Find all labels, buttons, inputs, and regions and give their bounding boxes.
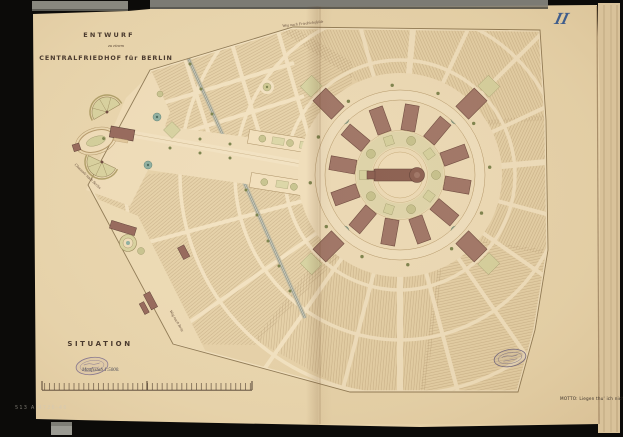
title-line1: ENTWURF <box>64 31 154 39</box>
clamp <box>51 422 72 435</box>
underlying-sheet-edge <box>598 3 620 433</box>
motto-label: MOTTO: Liegen thu' ich nicht. <box>560 396 623 401</box>
situation-label: SITUATION <box>58 340 142 348</box>
scale-label: Maafsstab 1:5000. <box>82 368 120 373</box>
paper-aging <box>33 5 600 427</box>
shelfmark-label: 513 A 4726-46 <box>15 405 68 411</box>
title-line2: zu einem <box>76 43 156 48</box>
title-line3: CENTRALFRIEDHOF für BERLIN <box>28 54 184 62</box>
archival-map-photo: ENTWURF zu einem CENTRALFRIEDHOF für BER… <box>0 0 623 437</box>
